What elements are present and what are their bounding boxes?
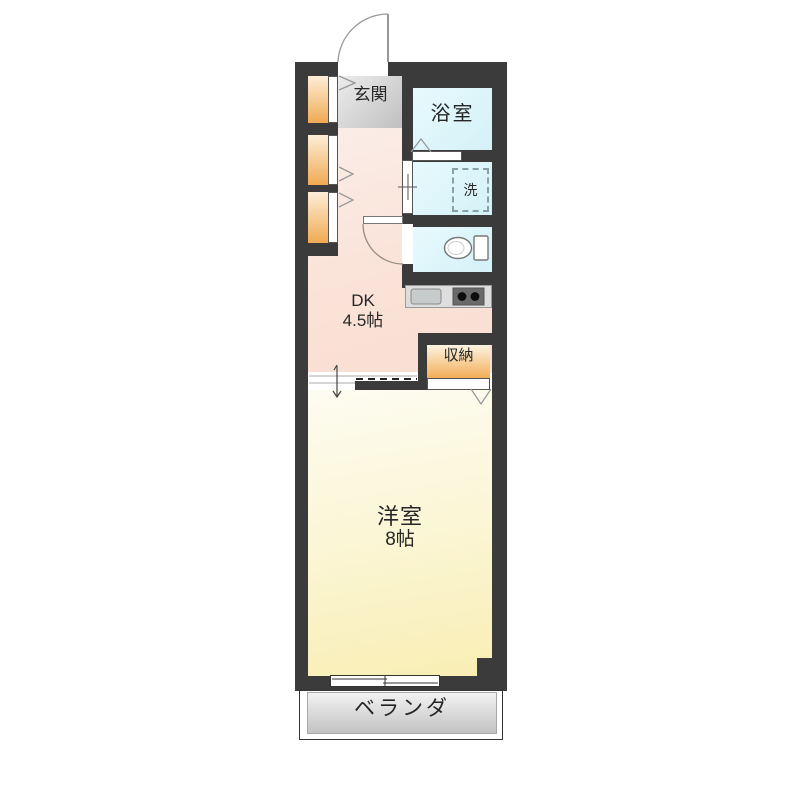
laundry-label: 洗 xyxy=(464,182,478,198)
toilet-door-leaf xyxy=(363,216,403,224)
closet-2-door xyxy=(328,135,338,185)
storage-label: 収納 xyxy=(427,347,490,364)
washing-machine-area: 洗 xyxy=(452,168,489,212)
bathroom-label: 浴室 xyxy=(413,103,492,126)
wall-storage-top xyxy=(418,333,507,345)
dk-label: DK 4.5帖 xyxy=(305,291,421,330)
wall-partition xyxy=(355,381,418,390)
closet-1-door xyxy=(328,76,338,123)
bathroom-door xyxy=(412,151,462,161)
closet-3-door xyxy=(328,192,338,243)
floorplan: 洗 xyxy=(0,0,800,800)
sliding-window xyxy=(330,675,440,687)
dk-name: DK xyxy=(305,291,421,311)
western-room-name: 洋室 xyxy=(308,504,492,529)
western-room-label: 洋室 8帖 xyxy=(308,504,492,551)
wall-pillar-notch xyxy=(477,658,492,676)
storage-door xyxy=(427,378,490,390)
toilet-floor xyxy=(413,227,492,272)
western-room-size: 8帖 xyxy=(308,529,492,551)
washroom-door xyxy=(402,160,413,214)
genkan-label: 玄関 xyxy=(338,85,403,105)
toilet-door-opening xyxy=(402,224,413,264)
wall-storage-left xyxy=(418,333,427,390)
closet-2 xyxy=(308,135,328,185)
entrance-door-arc xyxy=(338,14,388,62)
dk-size: 4.5帖 xyxy=(305,311,421,331)
closet-3 xyxy=(308,192,328,243)
veranda-label: ベランダ xyxy=(307,697,497,721)
closet-1 xyxy=(308,76,328,123)
entrance-opening xyxy=(338,62,388,76)
